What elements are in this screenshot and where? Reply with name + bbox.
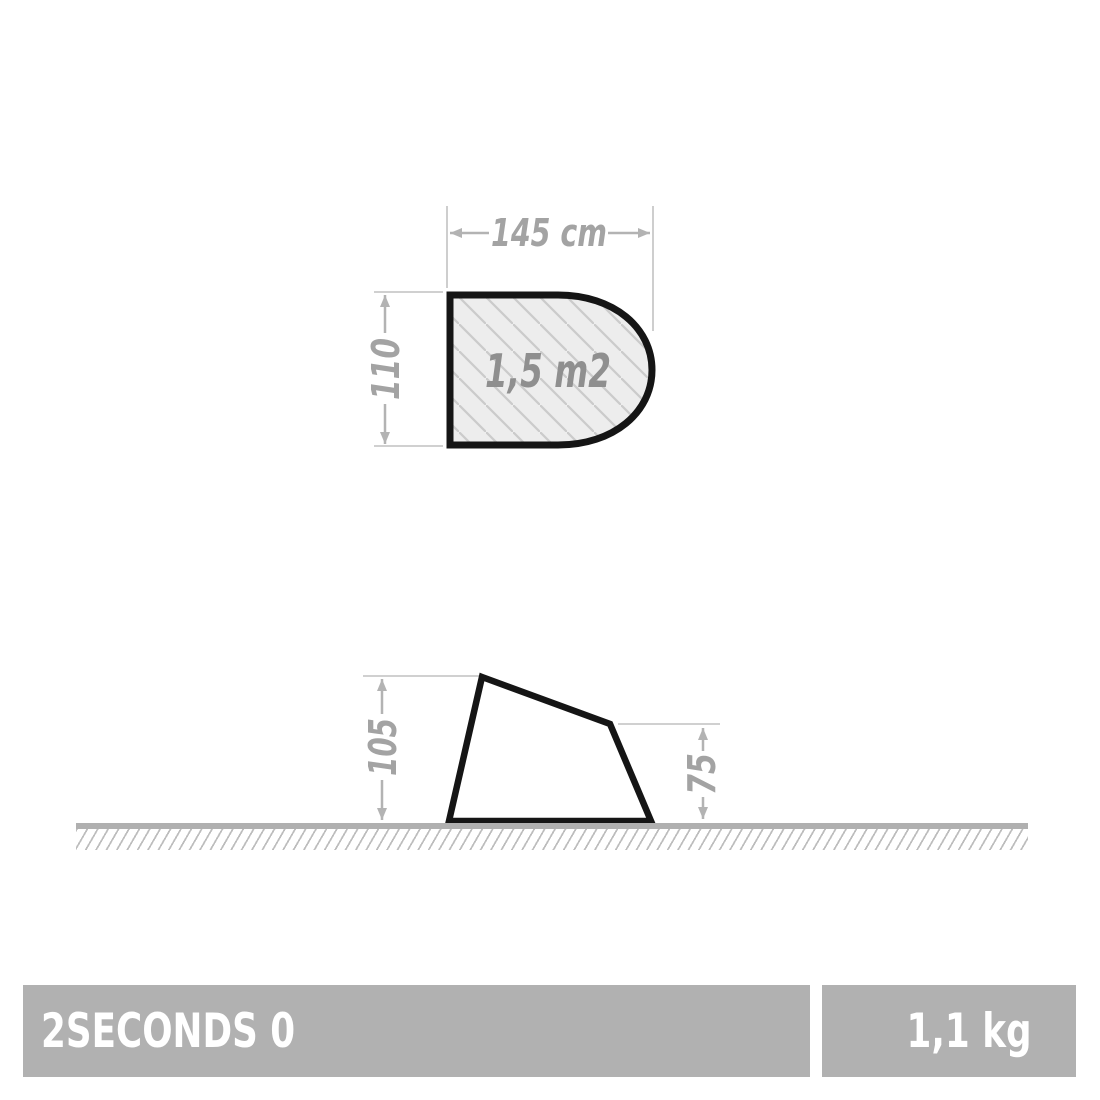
product-name-label: 2SECONDS 0 xyxy=(41,1004,295,1059)
footprint-width-label: 145 cm xyxy=(491,211,607,255)
footprint-area-label: 1,5 m2 xyxy=(485,344,611,398)
weight-label: 1,1 kg xyxy=(907,1004,1032,1059)
footprint-depth-label: 110 xyxy=(364,338,408,400)
side-front-height-label: 105 xyxy=(361,718,405,776)
side-rear-height-label: 75 xyxy=(680,753,724,795)
product-dimension-diagram: 145 cm 110 1,5 m2 105 75 xyxy=(0,0,1100,1100)
ground-hatch xyxy=(76,829,1028,850)
diagram-canvas: 145 cm 110 1,5 m2 105 75 xyxy=(0,0,1100,1100)
weight-bar: 1,1 kg xyxy=(822,985,1076,1077)
tent-side-profile xyxy=(449,677,651,821)
product-name-bar: 2SECONDS 0 xyxy=(23,985,810,1077)
